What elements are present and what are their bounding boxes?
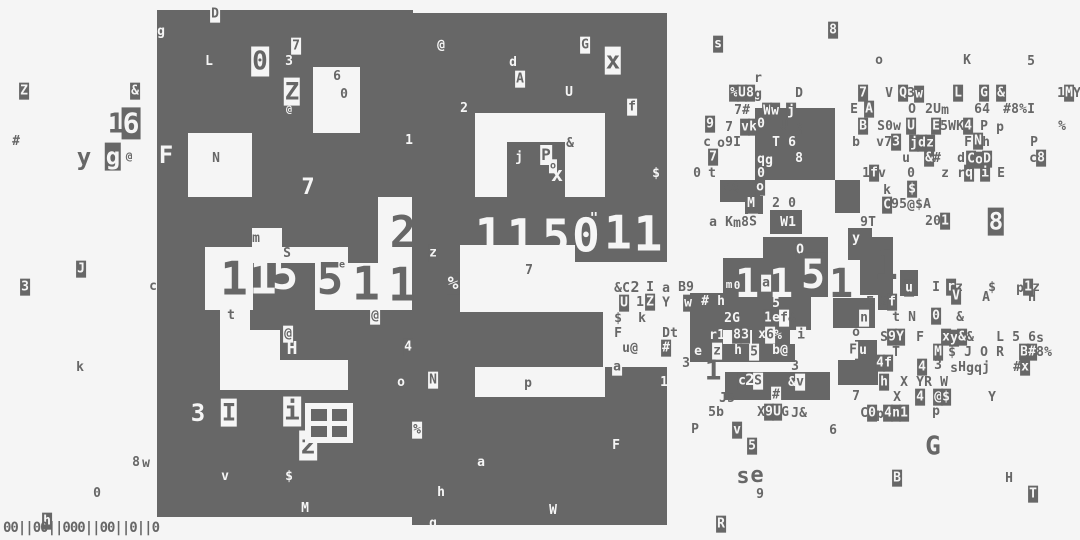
shape-middle-rect	[412, 367, 475, 397]
glyph: Y	[895, 329, 905, 346]
glyph: v	[876, 136, 884, 149]
glyph: 6	[829, 424, 837, 437]
glitch-canvas: Z&#16yg@F3Jck8w0hgDL037Z@60N7mSt1155e112…	[0, 0, 1080, 540]
glyph: P	[980, 120, 988, 133]
glyph: T	[892, 346, 900, 359]
glyph: P	[691, 423, 699, 436]
glyph: 8	[1036, 346, 1044, 359]
glyph: 0	[693, 167, 701, 180]
glyph: H	[958, 361, 966, 374]
glyph: g	[105, 143, 121, 171]
glyph: 4	[982, 103, 990, 116]
shape-right-rect	[835, 180, 860, 213]
glyph: G	[781, 406, 789, 419]
glyph: F	[964, 136, 972, 149]
glyph: G	[732, 312, 740, 325]
glyph: U	[565, 86, 573, 99]
glyph: 8	[795, 152, 803, 165]
glyph: D	[210, 6, 220, 23]
glyph: L	[996, 331, 1004, 344]
glyph: 5	[749, 344, 759, 361]
glyph: S	[748, 214, 758, 231]
glyph: 2	[390, 211, 417, 255]
glyph: 8	[1011, 103, 1019, 116]
glyph: #	[1003, 103, 1011, 116]
glyph: 6	[1028, 331, 1036, 344]
glyph: z	[941, 167, 949, 180]
glyph: J	[76, 261, 86, 278]
glyph: v	[732, 422, 742, 439]
glyph: y	[852, 232, 860, 245]
glyph: &	[566, 137, 574, 150]
glyph: h	[982, 136, 990, 149]
glyph: L	[953, 85, 963, 102]
glyph: t	[227, 309, 235, 322]
glyph: o	[397, 376, 405, 389]
glyph: 9	[725, 136, 733, 149]
glyph: R	[716, 516, 726, 533]
glyph: H	[287, 340, 298, 358]
glyph: O	[980, 346, 988, 359]
glyph: J	[719, 392, 727, 405]
glyph: 3	[791, 360, 799, 373]
glyph: r	[754, 72, 762, 85]
glyph: v	[795, 374, 805, 391]
glyph: 1	[717, 329, 725, 342]
glyph: s	[736, 466, 749, 488]
glyph: k	[638, 312, 646, 325]
glyph: i	[283, 397, 301, 427]
shape-middle-rect	[605, 113, 667, 197]
glyph: 4	[963, 118, 973, 135]
glyph: E	[866, 296, 874, 309]
glyph: e	[750, 465, 763, 487]
glyph: 7	[858, 85, 868, 102]
glyph: 5	[1012, 331, 1020, 344]
shape-middle-rect	[412, 113, 475, 197]
glyph: 1	[660, 376, 668, 389]
glyph: 7	[301, 177, 314, 199]
glyph: Z	[284, 78, 300, 106]
glyph: 2	[925, 215, 933, 228]
glyph: 9	[756, 488, 764, 501]
shape-left-rect	[157, 228, 252, 247]
glyph: b	[772, 344, 780, 357]
glyph: I	[221, 399, 237, 427]
glyph: T	[868, 216, 876, 229]
glyph: p	[932, 405, 940, 418]
glyph: %	[1019, 103, 1027, 116]
glyph: 8	[1036, 150, 1046, 167]
glyph: z	[428, 245, 438, 262]
glyph: 3	[682, 357, 690, 370]
glyph: D	[662, 327, 670, 340]
glyph: 1	[220, 256, 248, 302]
shape-middle-rect	[412, 397, 667, 525]
glyph: 1	[636, 296, 644, 309]
glyph: 8	[132, 456, 140, 469]
glyph: 6	[974, 103, 982, 116]
shape-left-rect	[157, 197, 378, 228]
glyph: 1	[829, 264, 853, 304]
glyph: t	[708, 167, 716, 180]
shape-middle-rect	[412, 312, 603, 367]
glyph: 0	[340, 88, 348, 101]
glyph: i	[796, 327, 806, 344]
glyph: S	[753, 373, 763, 390]
glyph: q	[429, 517, 437, 530]
glyph: I	[733, 136, 741, 149]
glyph: Q	[732, 181, 740, 194]
glyph: 1	[705, 357, 722, 385]
glyph: X	[893, 391, 901, 404]
glyph: $	[652, 167, 660, 180]
glyph: 7	[852, 390, 860, 403]
glyph: N	[908, 311, 916, 324]
glyph: 5	[772, 297, 780, 310]
glyph: t	[892, 311, 900, 324]
glyph: 6	[122, 107, 141, 139]
glyph: J	[964, 346, 972, 359]
glyph: F	[848, 342, 858, 359]
glyph: e	[694, 345, 702, 358]
glyph: e	[724, 181, 732, 194]
glyph: Z	[19, 83, 29, 100]
glyph: 5	[747, 438, 757, 455]
glyph: n	[859, 310, 869, 327]
glyph: h	[879, 374, 889, 391]
glyph: X	[900, 376, 908, 389]
glyph: I	[1027, 103, 1035, 116]
glyph: w	[683, 295, 693, 312]
glyph: H	[1028, 291, 1036, 304]
shape-left-rect	[360, 67, 413, 133]
glyph: 4	[917, 359, 927, 376]
glyph: #	[742, 104, 750, 117]
glyph: s	[713, 36, 723, 53]
glyph: 0	[885, 120, 893, 133]
glyph: 7	[734, 104, 742, 117]
glyph: O	[908, 103, 916, 116]
glyph: %	[1058, 120, 1066, 133]
glyph: c	[149, 280, 157, 293]
glyph: %	[412, 422, 422, 439]
glyph: 5	[708, 406, 716, 419]
glyph: C	[622, 282, 630, 295]
glyph: %	[774, 329, 782, 342]
glyph: 0	[931, 308, 941, 325]
glyph: m	[941, 104, 949, 117]
glyph: K	[725, 216, 733, 229]
glyph: A	[923, 198, 931, 211]
glyph: F	[159, 143, 173, 167]
glyph: d	[957, 152, 965, 165]
glyph: o	[755, 179, 765, 196]
glyph: U	[906, 118, 916, 135]
glyph: R	[924, 376, 932, 389]
glyph: U	[933, 103, 941, 116]
glyph: $	[948, 346, 956, 359]
glyph: y	[77, 145, 91, 169]
glyph: p	[524, 377, 532, 390]
glyph: 5	[542, 214, 570, 260]
glyph: Y	[988, 391, 996, 404]
glyph: 1	[405, 134, 413, 147]
glyph: q	[964, 165, 974, 182]
glyph: U	[780, 120, 788, 133]
glyph: 0	[251, 47, 269, 77]
glyph: Y	[1073, 87, 1080, 100]
glyph: $	[614, 312, 622, 325]
glyph: v	[221, 470, 229, 483]
glyph: t	[670, 327, 678, 340]
glyph: U	[619, 295, 629, 312]
glyph: a	[662, 282, 670, 295]
glyph: 2	[724, 312, 732, 325]
glyph: A	[982, 291, 990, 304]
glyph: u	[859, 344, 867, 357]
glyph: G	[580, 37, 590, 54]
glyph: 0	[907, 167, 915, 180]
glyph: j	[982, 361, 990, 374]
shape-right-rect	[838, 360, 878, 385]
glyph: e	[339, 261, 345, 271]
glyph: m	[252, 232, 260, 245]
glyph: 0	[93, 487, 101, 500]
glyph: 3	[20, 279, 30, 296]
glyph: g	[765, 154, 773, 167]
glyph: 1	[788, 216, 796, 229]
glyph: w	[914, 86, 924, 103]
glyph: p	[996, 121, 1004, 134]
glyph: b	[852, 136, 860, 149]
shape-left-rect	[250, 310, 413, 330]
glyph: g	[754, 88, 762, 101]
glyph: Y	[916, 376, 924, 389]
glyph: $	[907, 181, 917, 198]
glyph: 2	[925, 103, 933, 116]
glyph: 9	[705, 116, 715, 133]
glyph: w	[770, 103, 780, 120]
glyph: u	[622, 342, 630, 355]
glyph: I	[646, 281, 654, 294]
glyph: V	[951, 288, 961, 305]
glyph: 0	[756, 116, 766, 133]
glyph: i	[980, 165, 990, 182]
glyph: W	[948, 120, 956, 133]
glyph: &	[614, 282, 622, 295]
glyph: Y	[661, 295, 671, 312]
glyph: 8	[988, 208, 1004, 236]
glyph: 9	[686, 281, 694, 294]
glyph: 5	[899, 198, 907, 211]
glyph: u	[902, 152, 910, 165]
glyph: 1	[352, 261, 380, 307]
glyph: N	[428, 372, 438, 389]
glyph: 8	[828, 22, 838, 39]
glyph: g	[966, 362, 974, 375]
glyph: 5	[940, 120, 948, 133]
glyph: o	[875, 54, 883, 67]
glyph: T	[772, 136, 780, 149]
glyph: B	[678, 281, 686, 294]
glyph: m	[726, 279, 733, 290]
glyph: #	[12, 135, 20, 148]
glyph: a	[477, 456, 485, 469]
glyph: S	[877, 120, 885, 133]
glyph: %	[1044, 346, 1052, 359]
glyph: $	[285, 470, 293, 483]
glyph: $	[941, 389, 951, 406]
glyph: 1	[940, 213, 950, 230]
glyph: 2	[630, 280, 639, 295]
glyph: s	[1036, 332, 1044, 345]
glyph: @	[907, 199, 915, 212]
glyph: H	[1005, 472, 1013, 485]
glyph: v	[878, 167, 886, 180]
glyph: Z	[645, 294, 655, 311]
glyph: W	[940, 376, 948, 389]
glyph: E	[850, 103, 858, 116]
glyph: q	[757, 153, 765, 166]
glyph: u	[904, 280, 914, 297]
checker-tile	[305, 403, 353, 443]
glyph: F	[916, 331, 924, 344]
glyph: 9	[860, 216, 868, 229]
glyph: &	[956, 311, 964, 324]
glyph: F	[612, 439, 620, 452]
glyph: j	[786, 103, 796, 120]
glyph: A	[515, 71, 525, 88]
glyph: 1	[604, 210, 632, 256]
shape-left-rect	[157, 310, 220, 330]
glyph: o	[852, 326, 860, 339]
glyph: L	[205, 55, 213, 68]
glyph: 3	[934, 359, 942, 372]
binary-row: 00||00||000||00||0||0	[3, 521, 159, 535]
glyph: s	[950, 362, 958, 375]
glyph: h	[717, 295, 725, 308]
glyph: @	[630, 342, 638, 355]
glyph: #	[771, 387, 781, 404]
glyph: k	[76, 361, 84, 374]
glyph: 1	[899, 405, 909, 422]
glyph: w	[893, 120, 901, 133]
glyph: r	[709, 329, 717, 342]
glyph: 1	[475, 213, 504, 261]
glyph: f	[627, 99, 637, 116]
glyph: G	[979, 85, 989, 102]
glyph: M	[747, 197, 755, 210]
glyph: &	[799, 407, 807, 420]
glyph: #	[661, 340, 671, 357]
glyph: q	[974, 362, 982, 375]
glyph: N	[212, 152, 220, 165]
glyph: P	[1030, 136, 1038, 149]
glyph: &	[966, 331, 974, 344]
glyph: x	[551, 164, 563, 184]
glyph: #	[933, 152, 941, 165]
glyph: 1	[388, 262, 416, 308]
glyph: 3	[740, 327, 750, 344]
glyph: x	[1020, 359, 1030, 376]
glyph: q	[796, 121, 804, 134]
glyph: a	[709, 216, 717, 229]
glyph: E	[997, 167, 1005, 180]
glyph: o	[717, 137, 725, 150]
glyph: h	[734, 344, 742, 357]
glyph: J	[791, 407, 799, 420]
glyph: 1	[735, 264, 759, 304]
glyph: m	[733, 217, 741, 230]
glyph: @	[125, 149, 134, 164]
glyph: 6	[333, 70, 341, 83]
glyph: w	[142, 457, 150, 470]
glyph: 2	[460, 102, 468, 115]
glyph: 3	[191, 401, 205, 425]
glyph: K	[963, 54, 971, 67]
glyph: f	[887, 294, 897, 311]
glyph: @	[286, 106, 292, 116]
glyph: 2	[772, 197, 780, 210]
glyph: x	[605, 47, 621, 75]
glyph: &	[130, 83, 140, 100]
glyph: R	[996, 346, 1004, 359]
glyph: j	[515, 151, 523, 164]
glyph: B	[858, 118, 868, 135]
glyph: 7	[725, 121, 733, 134]
glyph: M	[301, 502, 309, 515]
glyph: W	[549, 504, 557, 517]
glyph: #	[701, 295, 709, 308]
glyph: a	[612, 359, 622, 376]
shape-left-rect	[157, 247, 205, 310]
glyph: b	[716, 406, 724, 419]
glyph: 7	[291, 38, 301, 55]
glyph: 1	[874, 246, 898, 286]
glyph: 7	[525, 264, 533, 277]
glyph: W	[780, 216, 788, 229]
glyph: &	[996, 85, 1006, 102]
shape-left-rect	[157, 330, 220, 390]
glyph: g	[157, 25, 165, 38]
glyph: @	[780, 344, 788, 357]
glyph: 6	[788, 136, 796, 149]
glyph: k	[883, 184, 891, 197]
glyph: 9	[891, 198, 899, 211]
glyph: d	[509, 56, 517, 69]
glyph: F	[614, 327, 622, 340]
glyph: "	[590, 211, 598, 225]
glyph: 5	[800, 253, 826, 297]
glyph: 7	[708, 149, 718, 166]
glyph: B	[892, 470, 902, 487]
glyph: @	[370, 308, 380, 325]
glyph: &	[788, 312, 796, 325]
glyph: 5	[1027, 55, 1035, 68]
glyph: T	[1028, 486, 1038, 503]
glyph: 4	[403, 339, 413, 356]
glyph: $	[915, 198, 923, 211]
glyph: 5	[727, 392, 735, 405]
glyph: 0	[788, 197, 796, 210]
glyph: @	[437, 39, 445, 52]
glyph: D	[795, 87, 803, 100]
glyph: 5	[272, 253, 299, 297]
glyph: c	[703, 136, 711, 149]
glyph: V	[885, 87, 893, 100]
glyph: %	[447, 273, 460, 295]
